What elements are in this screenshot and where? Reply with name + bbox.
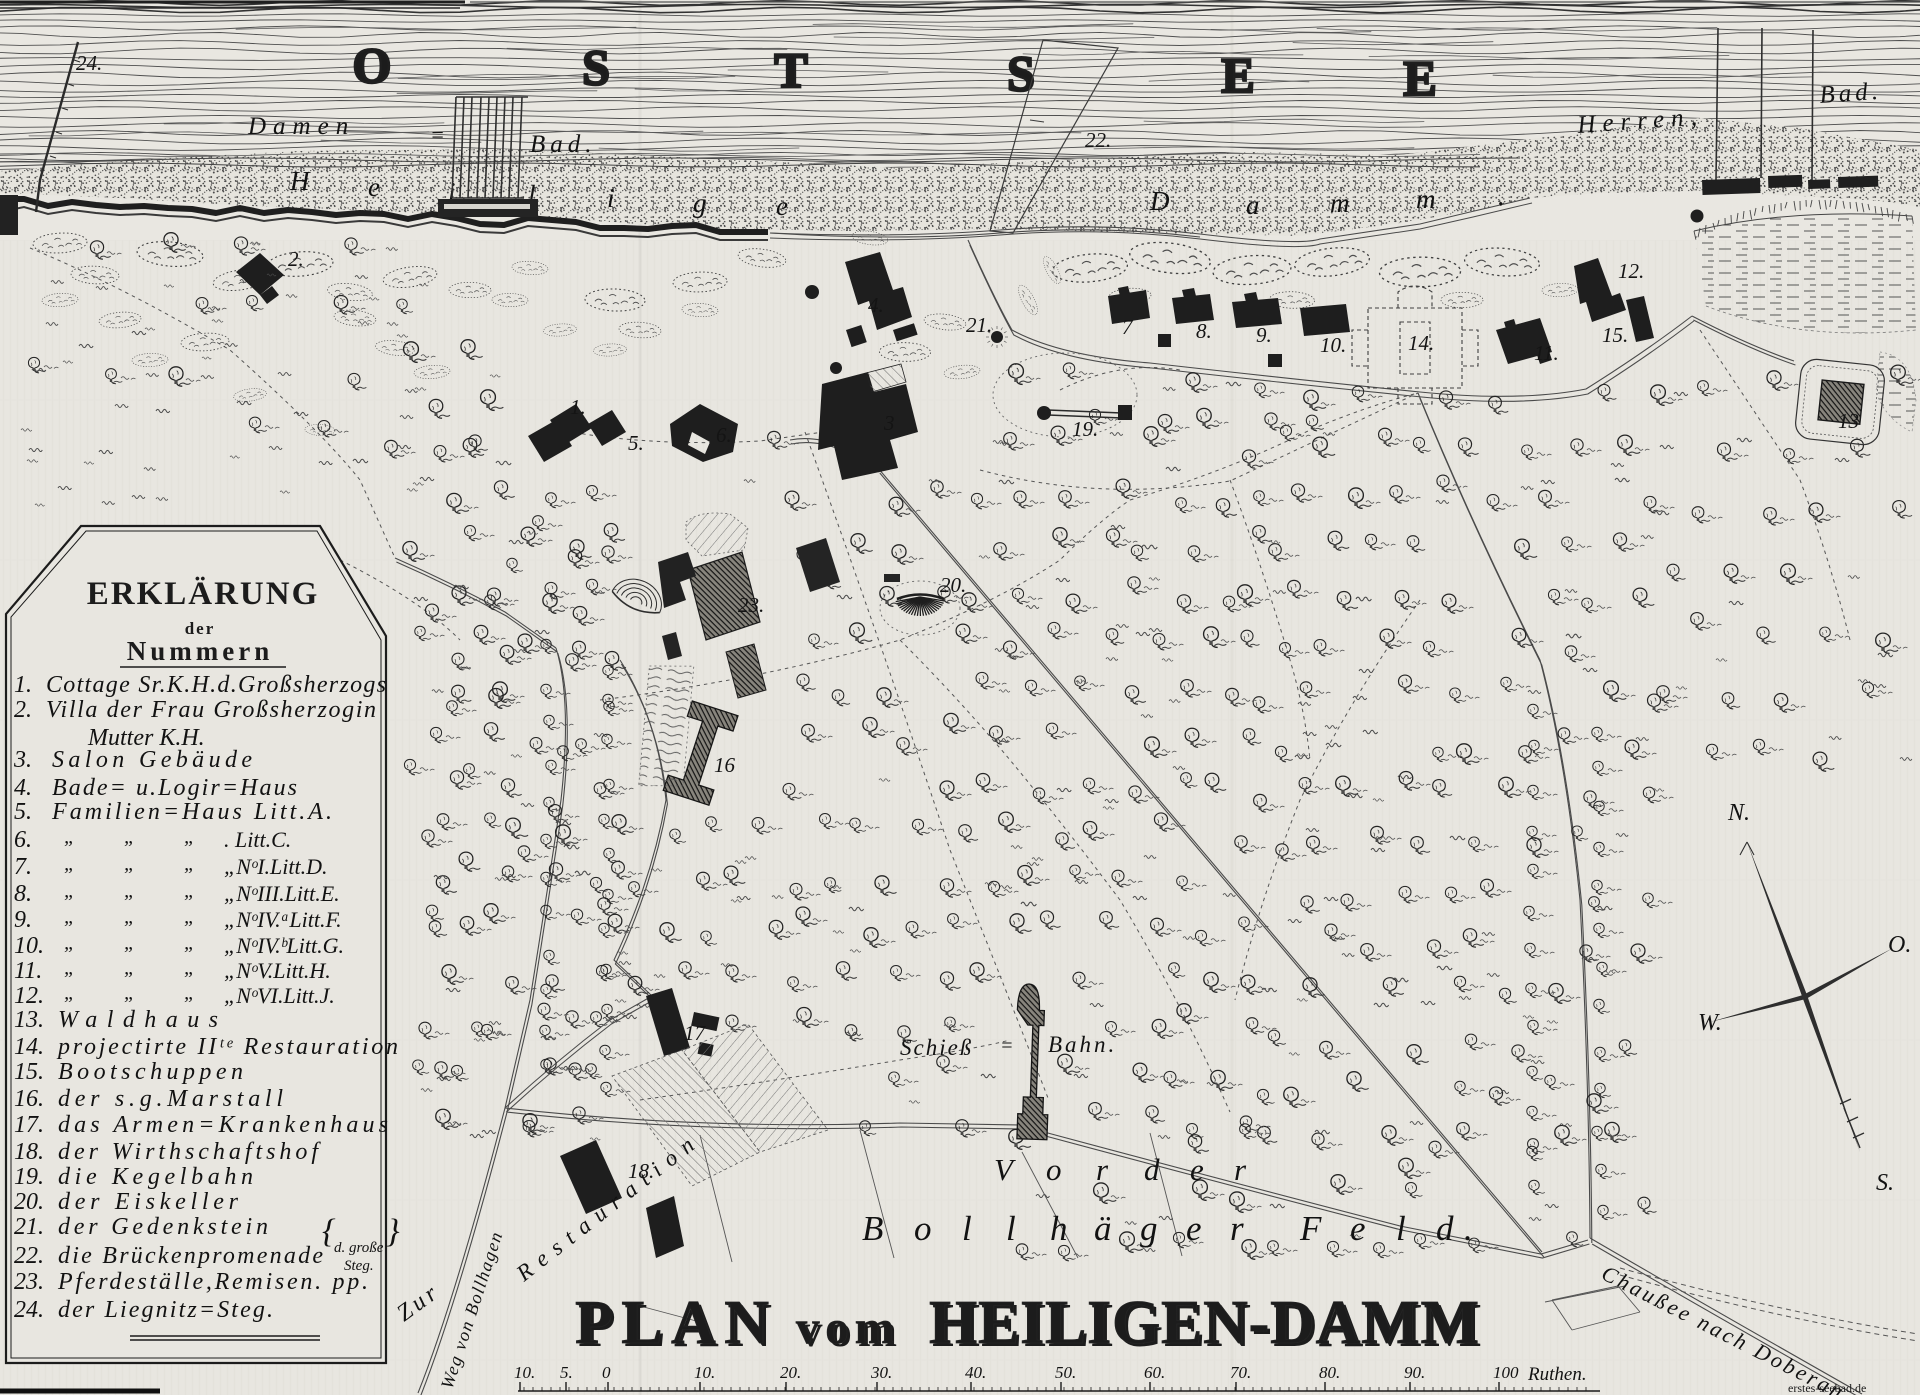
svg-text:11.: 11. xyxy=(14,958,42,984)
svg-text:70.: 70. xyxy=(1230,1363,1251,1382)
svg-text:13: 13 xyxy=(1838,409,1859,433)
svg-text:l: l xyxy=(962,1209,972,1248)
svg-text:„: „ xyxy=(124,880,135,902)
svg-text:e: e xyxy=(368,172,380,202)
svg-text:„: „ xyxy=(124,826,135,848)
svg-text:Bade= u.Logir=Haus: Bade= u.Logir=Haus xyxy=(52,775,297,801)
svg-text:Cottage Sr.K.H.d.Großsherzogs: Cottage Sr.K.H.d.Großsherzogs xyxy=(46,672,386,698)
svg-text:14.: 14. xyxy=(14,1034,44,1060)
svg-text:d: d xyxy=(1436,1209,1454,1248)
svg-text:„: „ xyxy=(64,826,75,848)
svg-text:80.: 80. xyxy=(1319,1363,1340,1382)
svg-text:a: a xyxy=(1246,190,1260,220)
svg-text:„: „ xyxy=(184,957,195,979)
svg-text:S.: S. xyxy=(1876,1170,1894,1196)
svg-text:ERKLÄRUNG: ERKLÄRUNG xyxy=(87,576,320,612)
svg-text:20.: 20. xyxy=(14,1189,44,1215)
svg-text:das Armen=Krankenhaus: das Armen=Krankenhaus xyxy=(58,1112,388,1138)
svg-text:8.: 8. xyxy=(1196,319,1212,343)
svg-text:11.: 11. xyxy=(1534,341,1559,365)
svg-text:g: g xyxy=(1140,1209,1158,1248)
svg-text:S: S xyxy=(1007,45,1035,101)
svg-text:10.: 10. xyxy=(1320,333,1346,357)
svg-text:„: „ xyxy=(184,906,195,928)
svg-text:die Kegelbahn: die Kegelbahn xyxy=(58,1164,253,1190)
svg-text:1.: 1. xyxy=(570,395,586,419)
svg-text:Villa der Frau Großsherzogin: Villa der Frau Großsherzogin xyxy=(46,697,376,723)
svg-text:r: r xyxy=(1234,1152,1247,1187)
svg-text:22.: 22. xyxy=(14,1243,44,1269)
svg-text:21.: 21. xyxy=(14,1214,44,1240)
svg-text:m: m xyxy=(1330,188,1350,218)
svg-text:9.: 9. xyxy=(1256,323,1272,347)
svg-text:E: E xyxy=(1221,47,1254,103)
svg-text:60.: 60. xyxy=(1144,1363,1165,1382)
svg-text:V: V xyxy=(994,1152,1016,1187)
svg-text:h: h xyxy=(1050,1209,1068,1248)
svg-text:19.: 19. xyxy=(1072,417,1098,441)
svg-text:9.: 9. xyxy=(14,907,32,933)
svg-text:„: „ xyxy=(184,880,195,902)
svg-text:„NᵒIV.ᵃLitt.F.: „NᵒIV.ᵃLitt.F. xyxy=(224,907,342,932)
svg-text:„: „ xyxy=(64,906,75,928)
svg-text:„: „ xyxy=(184,932,195,954)
svg-text:24.: 24. xyxy=(76,51,102,75)
svg-text:=: = xyxy=(430,122,445,147)
svg-text:2.: 2. xyxy=(14,697,32,723)
svg-text:projectirte IIᵗᵉ Restauration: projectirte IIᵗᵉ Restauration xyxy=(56,1034,398,1060)
svg-text:„: „ xyxy=(124,982,135,1004)
svg-text:Familien=Haus Litt.A.: Familien=Haus Litt.A. xyxy=(51,799,332,825)
svg-text:5.: 5. xyxy=(560,1363,573,1382)
svg-text:e: e xyxy=(1186,1209,1202,1248)
svg-text:19.: 19. xyxy=(14,1164,44,1190)
svg-text:6.: 6. xyxy=(14,827,32,853)
svg-text:22.: 22. xyxy=(1085,128,1111,152)
svg-text:„: „ xyxy=(184,826,195,848)
svg-text:Bad.: Bad. xyxy=(530,131,597,158)
svg-text:12.: 12. xyxy=(1618,259,1644,283)
svg-text:.: . xyxy=(1464,1209,1473,1248)
svg-text:„: „ xyxy=(184,853,195,875)
svg-text:die Brückenpromenade: die Brückenpromenade xyxy=(58,1243,323,1269)
svg-text:e: e xyxy=(1190,1152,1204,1187)
svg-text:„: „ xyxy=(124,957,135,979)
svg-text:12.: 12. xyxy=(14,983,44,1009)
svg-text:14.: 14. xyxy=(1408,331,1434,355)
svg-text:20.: 20. xyxy=(940,573,966,597)
svg-text:o: o xyxy=(914,1209,932,1248)
svg-text:.: . xyxy=(1498,181,1505,211)
svg-text:W.: W. xyxy=(1698,1010,1722,1036)
svg-text:„NᵒV.Litt.H.: „NᵒV.Litt.H. xyxy=(224,958,331,983)
svg-text:m: m xyxy=(1416,184,1436,214)
svg-text:. Litt.C.: . Litt.C. xyxy=(224,827,291,852)
svg-text:d: d xyxy=(1144,1152,1160,1187)
svg-text:7: 7 xyxy=(1122,315,1134,339)
svg-text:5.: 5. xyxy=(14,799,32,825)
svg-text:O.: O. xyxy=(1888,932,1911,958)
svg-text:15.: 15. xyxy=(14,1059,44,1085)
svg-text:Bootschuppen: Bootschuppen xyxy=(58,1059,243,1085)
svg-text:E: E xyxy=(1403,50,1436,106)
svg-text:ä: ä xyxy=(1094,1209,1112,1248)
svg-text:r: r xyxy=(1096,1152,1109,1187)
svg-text:10.: 10. xyxy=(514,1363,535,1382)
svg-text:17.: 17. xyxy=(14,1112,44,1138)
svg-text:S: S xyxy=(582,39,610,95)
svg-text:15.: 15. xyxy=(1602,323,1628,347)
svg-text:g: g xyxy=(693,188,707,218)
svg-text:vom: vom xyxy=(796,1302,894,1354)
svg-text:l: l xyxy=(1396,1209,1406,1248)
svg-text:der Gedenkstein: der Gedenkstein xyxy=(58,1214,268,1240)
svg-text:2.: 2. xyxy=(288,247,304,271)
svg-text:4.: 4. xyxy=(14,775,32,801)
svg-text:3.: 3. xyxy=(13,747,32,773)
svg-text:18.: 18. xyxy=(14,1139,44,1165)
svg-text:PLAN: PLAN xyxy=(575,1289,769,1357)
svg-text:O: O xyxy=(353,37,392,93)
svg-text:„: „ xyxy=(124,906,135,928)
svg-text:Bad.: Bad. xyxy=(1819,78,1883,109)
svg-text:„NᵒI.Litt.D.: „NᵒI.Litt.D. xyxy=(224,854,327,879)
svg-text:100: 100 xyxy=(1493,1363,1519,1382)
svg-text:40.: 40. xyxy=(965,1363,986,1382)
svg-text:T: T xyxy=(774,42,807,98)
svg-text:5.: 5. xyxy=(628,431,644,455)
svg-text:„: „ xyxy=(64,880,75,902)
svg-text:7.: 7. xyxy=(14,854,32,880)
svg-text:6.: 6. xyxy=(716,423,732,447)
svg-text:„NᵒVI.Litt.J.: „NᵒVI.Litt.J. xyxy=(224,983,335,1008)
svg-text:16.: 16. xyxy=(14,1086,44,1112)
svg-text:e: e xyxy=(1350,1209,1366,1248)
svg-text:erstes-seebad.de: erstes-seebad.de xyxy=(1788,1381,1866,1395)
svg-text:0: 0 xyxy=(602,1363,611,1382)
svg-text:Nummern: Nummern xyxy=(127,636,273,666)
svg-text:23.: 23. xyxy=(14,1269,44,1295)
svg-text:d. große: d. große xyxy=(334,1240,384,1256)
svg-text:10.: 10. xyxy=(694,1363,715,1382)
svg-text:„: „ xyxy=(184,982,195,1004)
svg-text:„: „ xyxy=(124,853,135,875)
svg-text:B: B xyxy=(862,1209,883,1248)
svg-text:8.: 8. xyxy=(14,881,32,907)
svg-text:}: } xyxy=(386,1213,400,1250)
svg-text:„: „ xyxy=(64,932,75,954)
svg-text:D: D xyxy=(1149,186,1170,216)
svg-text:3: 3 xyxy=(883,411,895,435)
svg-text:der Wirthschaftshof: der Wirthschaftshof xyxy=(58,1139,321,1165)
svg-text:N.: N. xyxy=(1727,800,1750,826)
svg-text:4.: 4. xyxy=(868,293,884,317)
svg-text:„: „ xyxy=(124,932,135,954)
svg-text:16: 16 xyxy=(714,753,736,777)
svg-text:24.: 24. xyxy=(14,1297,44,1323)
svg-text:l: l xyxy=(1006,1209,1016,1248)
svg-text:r: r xyxy=(1230,1209,1244,1248)
svg-text:17: 17 xyxy=(684,1021,707,1045)
svg-text:i: i xyxy=(607,183,615,213)
svg-text:o: o xyxy=(1046,1152,1062,1187)
svg-text:H: H xyxy=(289,166,311,196)
svg-text:13.: 13. xyxy=(14,1007,44,1033)
svg-text:„NᵒIV.ᵇLitt.G.: „NᵒIV.ᵇLitt.G. xyxy=(224,933,344,958)
svg-text:„: „ xyxy=(64,982,75,1004)
svg-text:90.: 90. xyxy=(1404,1363,1425,1382)
svg-text:„: „ xyxy=(64,957,75,979)
svg-text:=: = xyxy=(1000,1035,1014,1057)
svg-text:der s.g.Marstall: der s.g.Marstall xyxy=(58,1086,283,1112)
svg-text:„: „ xyxy=(64,853,75,875)
svg-text:23.: 23. xyxy=(738,593,764,617)
svg-text:HEILIGEN-DAMM: HEILIGEN-DAMM xyxy=(929,1289,1479,1357)
svg-text:Ruthen.: Ruthen. xyxy=(1527,1364,1587,1385)
svg-text:e: e xyxy=(776,191,788,221)
svg-text:20.: 20. xyxy=(780,1363,801,1382)
svg-text:F: F xyxy=(1299,1209,1322,1248)
svg-text:30.: 30. xyxy=(870,1363,892,1382)
svg-text:Damen: Damen xyxy=(247,113,355,140)
svg-text:21.: 21. xyxy=(966,313,992,337)
svg-text:50.: 50. xyxy=(1055,1363,1076,1382)
svg-text:Bahn.: Bahn. xyxy=(1048,1032,1117,1057)
svg-text:Schieß: Schieß xyxy=(900,1035,973,1060)
svg-text:der Liegnitz=Steg.: der Liegnitz=Steg. xyxy=(58,1297,273,1323)
svg-text:1.: 1. xyxy=(14,672,32,698)
svg-text:10.: 10. xyxy=(14,933,44,959)
svg-text:„NᵒIII.Litt.E.: „NᵒIII.Litt.E. xyxy=(224,881,340,906)
